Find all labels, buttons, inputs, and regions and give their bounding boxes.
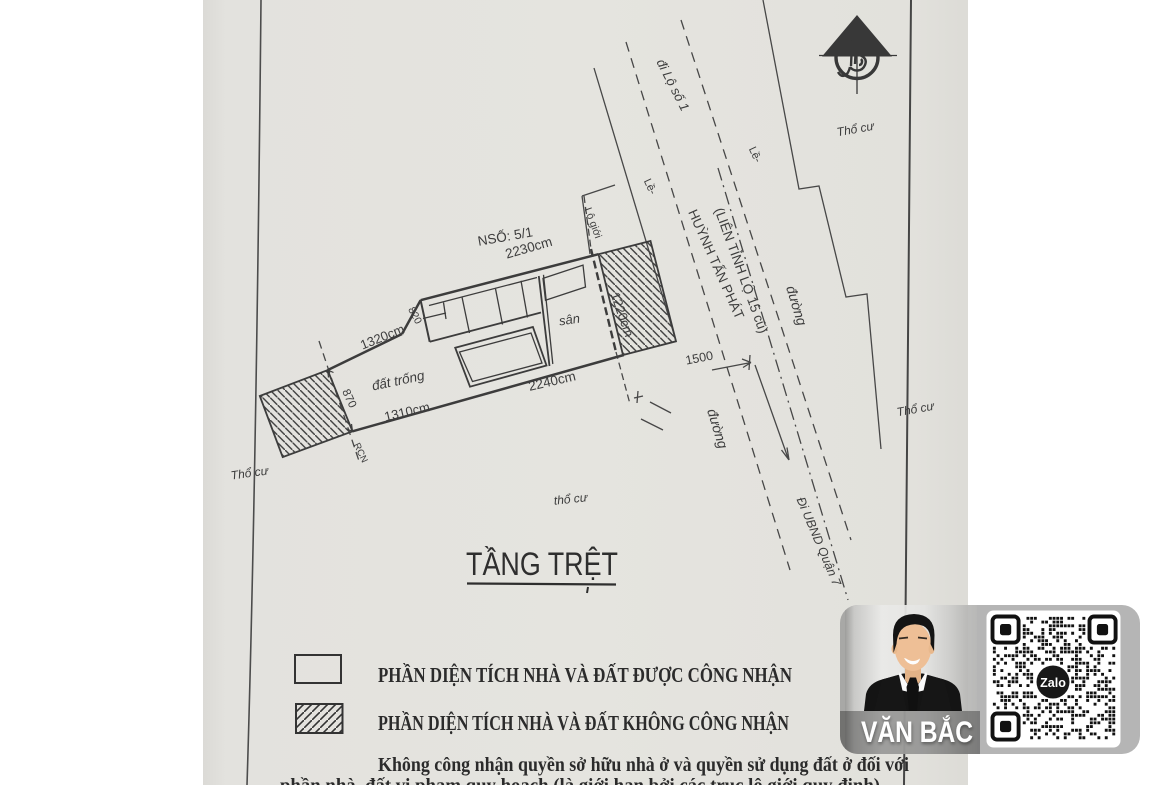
svg-text:đường: đường: [704, 407, 731, 451]
svg-text:1500: 1500: [684, 349, 714, 368]
svg-text:phần nhà, đất vi phạm quy hoạc: phần nhà, đất vi phạm quy hoạch (là giới…: [280, 776, 880, 785]
svg-text:Zalo: Zalo: [1040, 676, 1066, 690]
svg-text:Đi UBND Quận 7: Đi UBND Quận 7: [794, 495, 844, 589]
svg-text:2240cm: 2240cm: [527, 368, 577, 393]
svg-text:1310cm: 1310cm: [383, 399, 431, 424]
svg-text:PHẦN DIỆN TÍCH NHÀ VÀ ĐẤT KHÔN: PHẦN DIỆN TÍCH NHÀ VÀ ĐẤT KHÔNG CÔNG NHẬ…: [378, 711, 789, 735]
svg-text:1320cm: 1320cm: [358, 321, 407, 352]
svg-text:PHẦN DIỆN TÍCH NHÀ VÀ ĐẤT ĐƯỢC: PHẦN DIỆN TÍCH NHÀ VÀ ĐẤT ĐƯỢC CÔNG NHẬN: [378, 663, 792, 687]
svg-text:Thổ cư: Thổ cư: [230, 463, 271, 482]
svg-text:đi Lộ số 1: đi Lộ số 1: [654, 56, 693, 113]
svg-text:VĂN BẮC: VĂN BẮC: [861, 715, 973, 749]
svg-text:sân: sân: [558, 311, 581, 329]
svg-text:Thổ cư: Thổ cư: [836, 119, 877, 140]
svg-text:Không công nhận quyền sở hữu n: Không công nhận quyền sở hữu nhà ở và qu…: [378, 755, 910, 776]
svg-text:thổ cư: thổ cư: [553, 490, 589, 508]
svg-text:Lộ giới: Lộ giới: [582, 206, 604, 240]
svg-text:đất trống: đất trống: [370, 368, 426, 394]
svg-text:Lề-: Lề-: [641, 177, 659, 197]
svg-text:RCN: RCN: [351, 441, 370, 464]
svg-text:đường: đường: [783, 284, 810, 328]
svg-text:TẦNG TRỆT: TẦNG TRỆT: [466, 546, 618, 582]
svg-text:Thổ cư: Thổ cư: [896, 399, 937, 420]
svg-text:Lề-: Lề-: [746, 145, 764, 165]
